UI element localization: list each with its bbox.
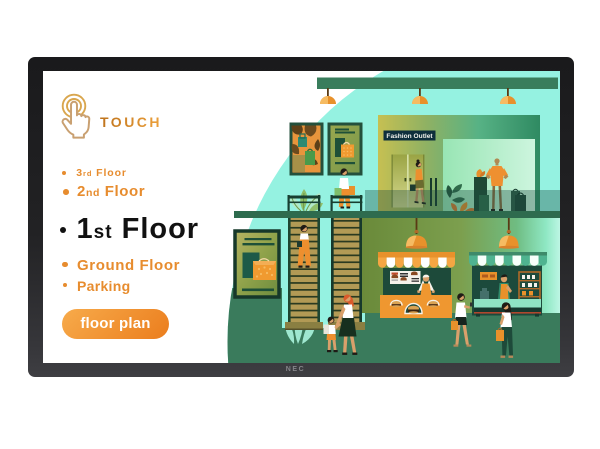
svg-text:Fashion Outlet: Fashion Outlet [386, 133, 433, 140]
